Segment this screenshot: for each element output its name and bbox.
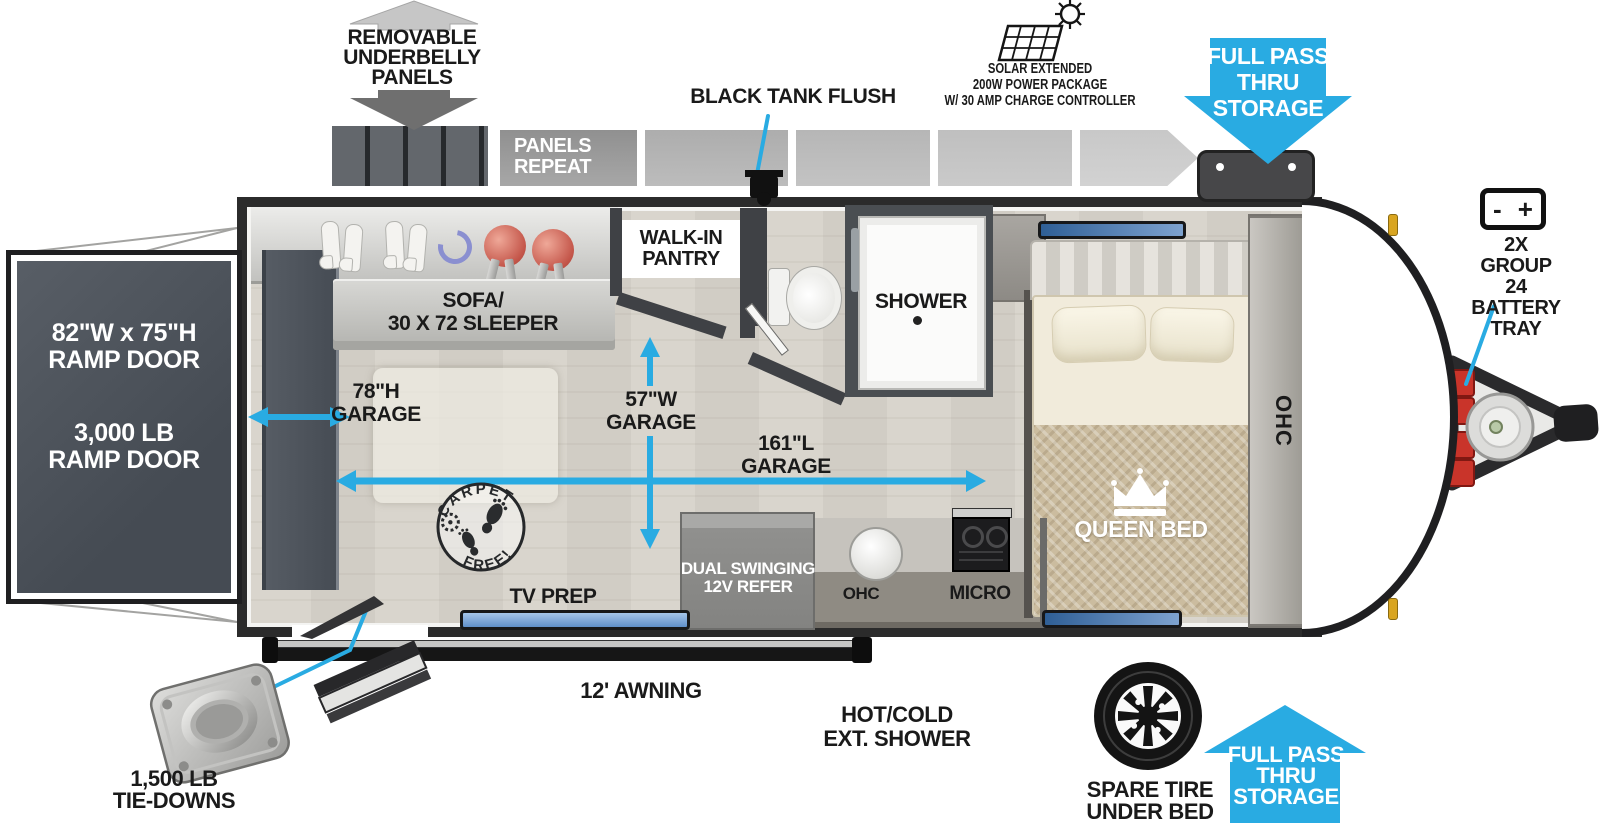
- bed-headboard-ruffle: [1030, 240, 1258, 300]
- panels-repeat-label: PANELS REPEAT: [514, 136, 591, 178]
- front-pass-thru-label: FULL PASS THRU STORAGE: [1207, 44, 1329, 121]
- battery-minus: -: [1493, 194, 1502, 225]
- garage-width-label: 57"W GARAGE: [606, 389, 696, 434]
- bedroom-window-bottom: [1042, 610, 1182, 628]
- rear-ramp-door-interior: [262, 250, 339, 590]
- solar-label-line3: W/ 30 AMP CHARGE CONTROLLER: [944, 94, 1135, 110]
- propane-tank: [1467, 394, 1533, 460]
- kitchen-sink: [849, 527, 903, 581]
- pillow: [1149, 307, 1235, 364]
- shower-drain: [913, 316, 922, 325]
- garage-height-label: 78"H GARAGE: [331, 381, 421, 426]
- refer-label: DUAL SWINGING 12V REFER: [681, 560, 815, 597]
- garage-window: [460, 610, 690, 630]
- bedroom-window-top: [1038, 221, 1186, 239]
- shower-bar: [851, 228, 859, 292]
- boot-prop: [342, 223, 363, 272]
- battery-icon: - +: [1480, 188, 1546, 230]
- floorplan-diagram: 82"W x 75"H RAMP DOOR 3,000 LB RAMP DOOR…: [0, 0, 1600, 825]
- shower-label: SHOWER: [875, 291, 967, 314]
- awning-rail: [268, 640, 868, 648]
- solar-label-line2: 200W POWER PACKAGE: [973, 78, 1107, 94]
- pantry-label: WALK-IN PANTRY: [640, 228, 723, 270]
- pantry-label-box: WALK-IN PANTRY: [622, 220, 740, 278]
- ramp-door-weight-label: 3,000 LB RAMP DOOR: [48, 420, 200, 474]
- spare-tire-label: SPARE TIRE UNDER BED: [1086, 779, 1213, 823]
- awning-end-cap: [262, 637, 278, 663]
- tv-prep-label: TV PREP: [509, 586, 596, 609]
- tie-downs-label: 1,500 LB TIE-DOWNS: [113, 768, 235, 812]
- queen-bed-label: QUEEN BED: [1074, 517, 1207, 542]
- pantry-wall: [610, 208, 622, 296]
- awning-label: 12' AWNING: [580, 679, 701, 703]
- rear-pass-thru-label: FULL PASS THRU STORAGE: [1228, 745, 1345, 808]
- pillow: [1051, 304, 1147, 363]
- ramp-door-size-label: 82"W x 75"H RAMP DOOR: [48, 320, 200, 374]
- stool-prop: [532, 229, 574, 271]
- ohc-front-label: OHC: [1270, 395, 1296, 447]
- garage-length-label: 161"L GARAGE: [741, 433, 831, 478]
- entry-door-opening: [292, 625, 428, 641]
- battery-tray-label: 2X GROUP 24 BATTERY TRAY: [1471, 235, 1560, 340]
- toilet-bowl: [786, 266, 842, 330]
- ohc-kitchen-label: OHC: [843, 585, 880, 603]
- hitch-coupler: [1553, 404, 1599, 443]
- micro-label: MICRO: [949, 584, 1010, 605]
- underbelly-label: REMOVABLE UNDERBELLY PANELS: [343, 28, 481, 88]
- front-storage-box: [1197, 150, 1315, 202]
- solar-label-line1: SOLAR EXTENDED: [988, 62, 1092, 78]
- stool-prop: [484, 225, 526, 267]
- awning-roll: [268, 648, 868, 661]
- awning-end-cap: [852, 637, 872, 663]
- marker-light: [1388, 214, 1398, 236]
- stove-cooktop: [952, 517, 1010, 572]
- ext-shower-label: HOT/COLD EXT. SHOWER: [823, 703, 970, 751]
- marker-light: [1388, 598, 1398, 620]
- sofa-label: SOFA/ 30 X 72 SLEEPER: [388, 290, 558, 335]
- black-tank-flush-label: BLACK TANK FLUSH: [690, 86, 896, 109]
- battery-plus: +: [1518, 194, 1533, 225]
